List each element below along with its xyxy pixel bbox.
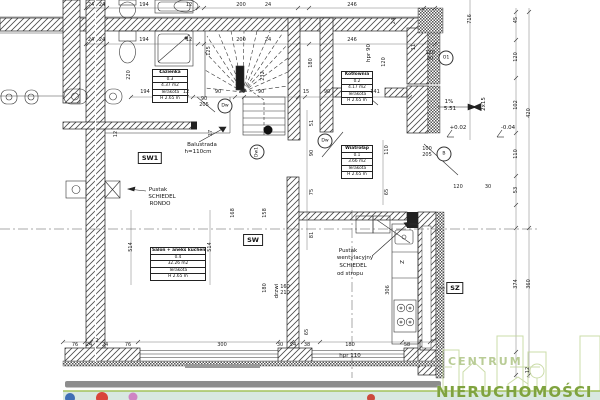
- dimension-label: 168: [230, 208, 236, 218]
- dimension-label: 12: [186, 2, 192, 8]
- annotation-label: +0.02: [450, 125, 467, 131]
- dimension-label: 90: [258, 89, 264, 95]
- annotation-label: hpr 90: [366, 44, 372, 62]
- dimension-label: 20: [239, 89, 245, 95]
- dimension-label: 180: [345, 342, 355, 348]
- annotation-label: Z: [400, 260, 406, 264]
- annotation-label: h=110cm: [185, 149, 212, 155]
- dimension-label: 158: [262, 208, 268, 218]
- dimension-label: 24: [99, 2, 105, 8]
- annotation-label: SCHIEDEL: [339, 263, 366, 269]
- dimension-label: 30: [485, 184, 491, 190]
- dimension-label: 220: [126, 70, 132, 80]
- dimension-label: 210: [280, 290, 290, 296]
- dimension-label: 514: [128, 242, 134, 252]
- dimension-label: 38: [304, 342, 310, 348]
- dimension-label: 232: [260, 71, 266, 81]
- circle-label: O1: [439, 51, 454, 66]
- dimension-label: 24: [88, 2, 94, 8]
- annotation-label: wentylacyjny: [337, 255, 373, 261]
- dimension-label: 110: [384, 145, 390, 155]
- dimension-label: 300: [217, 342, 227, 348]
- dimension-label: 24: [88, 37, 94, 43]
- dimension-label: 90: [215, 89, 221, 95]
- circle-label: Dw1: [250, 145, 265, 160]
- dimension-label: 53: [513, 187, 519, 193]
- dimension-label: 125: [206, 46, 212, 56]
- dimension-label: 205: [199, 102, 209, 108]
- dimension-label: 76: [72, 342, 78, 348]
- dimension-label: 15: [303, 89, 309, 95]
- dimension-label: 194: [140, 89, 150, 95]
- dimension-label: 200: [236, 37, 246, 43]
- annotation-label: Pustak: [339, 248, 357, 254]
- dimension-label: 24: [86, 342, 92, 348]
- dimension-label: 76: [125, 342, 131, 348]
- annotation-label: Balustrada: [187, 142, 217, 148]
- annotation-label: 2x15: [481, 97, 487, 111]
- dimension-label: 12: [113, 131, 119, 137]
- dimension-label: 2: [95, 338, 98, 344]
- dimension-label: 374: [513, 279, 519, 289]
- floor-plan-screenshot: Łazienka 0.3 4.37 m2 Terakota H 2.65 m K…: [0, 0, 600, 400]
- dimension-label: 65: [304, 329, 310, 335]
- annotation-label: Pustak: [149, 187, 167, 193]
- annotation-label: 1%: [445, 99, 454, 105]
- dimension-label: 110: [513, 149, 519, 159]
- dimension-label: 141: [370, 89, 380, 95]
- annotation-label: SCHIEDEL: [148, 194, 175, 200]
- annotation-label: 5.51: [444, 106, 456, 112]
- dimension-label: 90: [309, 150, 315, 156]
- dimension-label: 24: [391, 18, 397, 24]
- dimension-label: 246: [347, 2, 357, 8]
- label-layer: 2424194122002424624241941220024246112419…: [0, 0, 600, 400]
- watermark-brand-top: CENTRUM: [448, 355, 568, 368]
- annotation-label: RONDO: [150, 201, 171, 207]
- circle-label: Dw: [218, 99, 233, 114]
- annotation-label: -0.04: [501, 125, 515, 131]
- dimension-label: 75: [309, 189, 315, 195]
- dimension-label: 194: [139, 37, 149, 43]
- dimension-label: 24: [265, 2, 271, 8]
- dimension-label: 81: [309, 232, 315, 238]
- dimension-label: 194: [139, 2, 149, 8]
- dimension-label: 24: [265, 37, 271, 43]
- dimension-label: 51: [309, 120, 315, 126]
- dimension-label: 80: [427, 56, 433, 62]
- annotation-label: od stropu: [337, 271, 363, 277]
- circle-label: B: [437, 147, 452, 162]
- dimension-label: 65: [384, 189, 390, 195]
- annotation-label: hpr 110: [339, 353, 360, 359]
- dimension-label: 11: [411, 44, 417, 50]
- dimension-label: 306: [385, 285, 391, 295]
- dimension-label: 17: [208, 130, 214, 136]
- dimension-label: 30: [277, 342, 283, 348]
- dimension-label: 420: [526, 108, 532, 118]
- annotation-label: drzwi: [274, 284, 280, 299]
- dimension-label: 24: [290, 342, 296, 348]
- dimension-label: 180: [262, 283, 268, 293]
- boxed-label: SW: [243, 234, 263, 246]
- dimension-label: 45: [513, 17, 519, 23]
- dimension-label: 120: [381, 57, 387, 67]
- boxed-label: SZ: [446, 282, 463, 294]
- dimension-label: 716: [467, 14, 473, 24]
- dimension-label: 200: [236, 2, 246, 8]
- dimension-label: 102: [513, 100, 519, 110]
- dimension-label: 514: [207, 242, 213, 252]
- circle-label: Dw: [318, 134, 333, 149]
- dimension-label: 120: [513, 52, 519, 62]
- dimension-label: 24: [102, 342, 108, 348]
- dimension-label: 12: [183, 89, 189, 95]
- dimension-label: 180: [308, 58, 314, 68]
- dimension-label: 90: [324, 89, 330, 95]
- dimension-label: 58: [404, 342, 410, 348]
- dimension-label: 24: [99, 37, 105, 43]
- watermark-brand-bottom: NIERUCHOMOŚCI: [436, 383, 600, 400]
- dimension-label: 360: [526, 279, 532, 289]
- dimension-label: 120: [453, 184, 463, 190]
- dimension-label: 205: [422, 152, 432, 158]
- dimension-label: 12: [186, 37, 192, 43]
- boxed-label: SW1: [138, 152, 162, 164]
- dimension-label: 246: [347, 37, 357, 43]
